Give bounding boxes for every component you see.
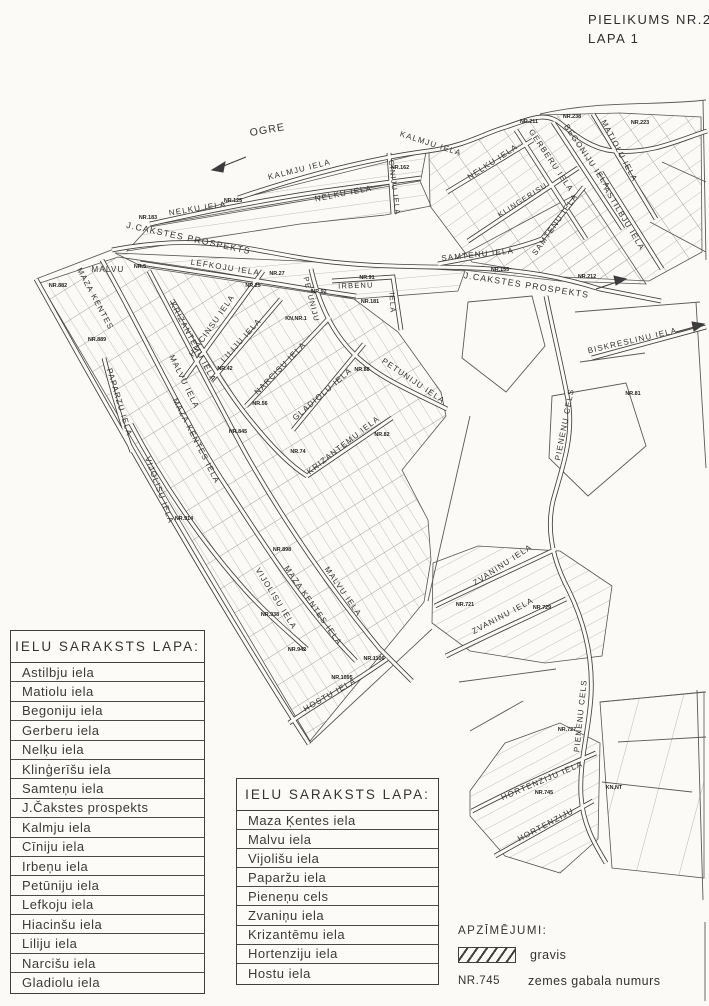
street-list-row: Liliju iela [11,934,204,953]
boundary-line [470,701,523,731]
parcel-number-label: NR.92 [311,289,326,295]
parcel-number-label: NR.745 [535,790,553,796]
boundary-line [540,100,706,114]
street-list-row: Lefkoju iela [11,896,204,915]
parcel-number-label: NR.82 [374,432,389,438]
street-list-row: Malvu iela [237,830,438,849]
parcel-number-label: NR.211 [520,119,538,125]
parcel-number-label: NR.5 [134,264,146,270]
parcel-number-label: NR.212 [578,274,596,280]
parcel-number-label: NR.721 [456,602,474,608]
street-list-row: Begoniju iela [11,702,204,721]
legend-item-gravis: gravis [458,947,698,963]
legend-label: zemes gabala numurs [528,974,660,988]
parcel-number-label: NR.942 [288,647,306,653]
legend-title: APZĪMĒJUMI: [458,925,698,937]
street-list-row: Hiacinšu iela [11,915,204,934]
parcel-number-label: NR.882 [49,283,67,289]
street-label: OGRE [249,121,286,139]
parcel-number-label: NR.181 [361,299,379,305]
street-list-row: Irbeņu iela [11,857,204,876]
boundary-line [575,302,700,312]
title-line2: LAPA 1 [588,31,639,46]
street-list-row: Vijolišu iela [237,849,438,868]
parcel-number-label: NR.183 [139,215,157,221]
parcel-number-label: NR.74 [290,449,305,455]
street-list-row: Samteņu iela [11,779,204,798]
street-list-row: Nelķu iela [11,741,204,760]
parcel-number-label: NR.938 [261,612,279,618]
map-legend: APZĪMĒJUMI: gravis NR.745 zemes gabala n… [458,925,698,999]
title-line1: PIELIKUMS NR.2 [588,12,709,27]
street-list-row: Gerberu iela [11,721,204,740]
parcel-number-label: NR.88 [354,367,369,373]
parcel-number-label: NR.42 [217,366,232,372]
parcel-number-label: KN,NR.1 [285,316,307,322]
street-list-row: Kalmju iela [11,818,204,837]
parcel-number-label: NR.729 [533,605,551,611]
street-list-row: Cīniju iela [11,838,204,857]
street-list-row: Hortenziju iela [237,945,438,964]
parcel-number-label: NR.162 [391,165,409,171]
street-label: MALVU [92,265,125,274]
street-label: IRBENU [338,280,374,290]
document-title: PIELIKUMS NR.2 LAPA 1 [588,10,709,48]
street-label: IELA [387,292,397,314]
parcel-number-label: NR.125 [224,198,242,204]
parcel-number-label: NR.56 [252,401,267,407]
parcel-number-label: NR.27 [269,271,284,277]
street-list-row: Astilbju iela [11,663,204,682]
street-list-row: Gladiolu iela [11,973,204,992]
boundary-line [703,100,706,260]
parcel-number-label: NR.155 [491,267,509,273]
street-list-row: Pieneņu cels [237,887,438,906]
hatch-symbol-icon [458,947,516,963]
legend-item-parcel-number: NR.745 zemes gabala numurs [458,974,698,988]
parcel-number-label: KN,NT [606,785,623,791]
boundary-line [462,296,545,392]
table-rows: Maza Ķentes ielaMalvu ielaVijolišu ielaP… [237,811,438,983]
street-list-row: Klinģerīšu iela [11,760,204,779]
table-header: IELU SARAKSTS LAPA: [237,779,438,811]
street-list-row: Hostu iela [237,964,438,983]
parcel-number-label: NR.845 [229,429,247,435]
street-list-row: Zvaniņu iela [237,906,438,925]
west-arrowhead-icon [212,162,225,172]
parcel-number-label: NR.1106 [364,656,385,662]
parcel-number-label: NR.81 [625,391,640,397]
street-list-row: Matiolu iela [11,682,204,701]
table-header: IELU SARAKSTS LAPA: [11,631,204,663]
parcel-number-label: NR.1095 [331,675,352,681]
parcel-number-label: NR.238 [563,114,581,120]
street-list-row: Paparžu iela [237,868,438,887]
legend-label: gravis [530,948,566,962]
street-list-table-middle: IELU SARAKSTS LAPA: Maza Ķentes ielaMalv… [236,778,439,985]
street-list-row: Petūniju iela [11,876,204,895]
street-list-row: Narcišu iela [11,954,204,973]
parcel-number-symbol: NR.745 [458,975,514,987]
parcel-number-label: NR.898 [273,547,291,553]
parcel-number-label: NR.91 [359,275,374,281]
parcel-number-label: NR.25 [245,283,260,289]
table-rows: Astilbju ielaMatiolu ielaBegoniju ielaGe… [11,663,204,993]
parcel-number-label: NR.727 [558,727,576,733]
parcel-number-label: NR.914 [175,516,193,522]
parcel-number-label: NR.889 [88,337,106,343]
street-list-row: J.Čakstes prospekts [11,799,204,818]
street-list-row: Maza Ķentes iela [237,811,438,830]
parcel-number-label: NR.223 [631,120,649,126]
boundary-line [459,669,556,682]
street-list-table-left: IELU SARAKSTS LAPA: Astilbju ielaMatiolu… [10,630,205,994]
street-list-row: Krizantēmu iela [237,926,438,945]
